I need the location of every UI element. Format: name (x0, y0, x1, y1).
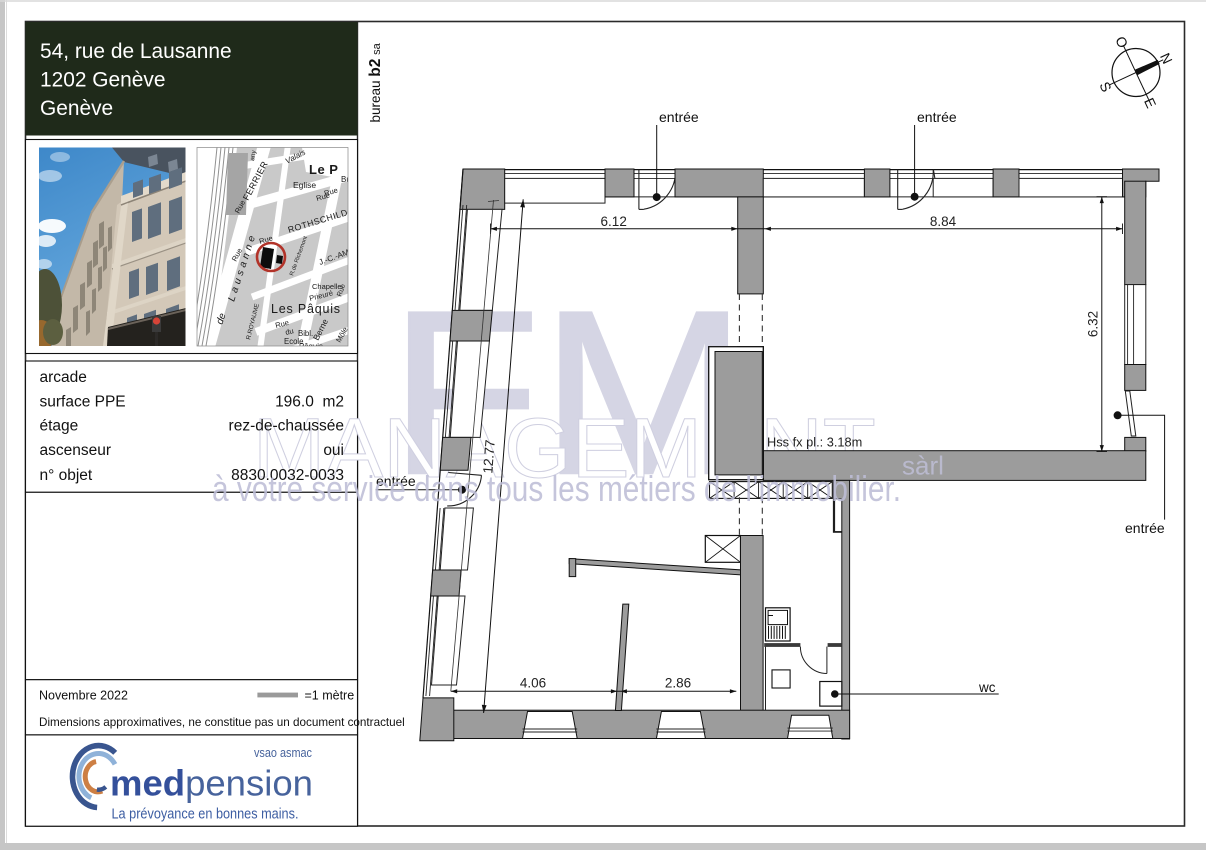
svg-text:6.12: 6.12 (601, 214, 627, 229)
svg-text:8.84: 8.84 (930, 214, 957, 229)
svg-text:oui: oui (323, 442, 344, 459)
svg-text:vsao asmac: vsao asmac (254, 746, 312, 760)
svg-text:=1 mètre: =1 mètre (305, 689, 355, 703)
svg-text:54, rue de Lausanne: 54, rue de Lausanne (40, 40, 232, 63)
svg-text:entrée: entrée (1125, 520, 1165, 536)
svg-text:n° objet: n° objet (40, 467, 93, 484)
svg-text:4.06: 4.06 (520, 676, 546, 691)
svg-text:Novembre 2022: Novembre 2022 (39, 689, 128, 703)
svg-text:étage: étage (40, 418, 79, 435)
svg-text:2.86: 2.86 (665, 676, 691, 691)
svg-text:surface PPE: surface PPE (40, 394, 126, 411)
svg-text:Genève: Genève (40, 97, 113, 120)
svg-text:Eglise: Eglise (293, 180, 316, 190)
svg-text:Hss fx pl.: 3.18m: Hss fx pl.: 3.18m (767, 435, 862, 450)
svg-text:wc: wc (978, 680, 996, 695)
svg-text:à votre service dans tous les: à votre service dans tous les métiers de… (212, 468, 901, 509)
svg-text:La prévoyance en bonnes mains.: La prévoyance en bonnes mains. (112, 806, 299, 823)
svg-text:196.0 m2: 196.0 m2 (275, 394, 344, 411)
svg-text:arcade: arcade (40, 369, 87, 386)
svg-text:1202 Genève: 1202 Genève (40, 69, 165, 92)
svg-text:rez-de-chaussée: rez-de-chaussée (229, 418, 344, 435)
svg-text:Dimensions approximatives, ne: Dimensions approximatives, ne constitue … (39, 716, 405, 729)
svg-text:sàrl: sàrl (902, 451, 944, 481)
svg-text:entrée: entrée (659, 109, 699, 125)
svg-text:medpension: medpension (110, 763, 313, 804)
svg-text:Le P: Le P (309, 162, 338, 177)
svg-text:Les Pâquis: Les Pâquis (271, 302, 341, 316)
svg-text:ascenseur: ascenseur (40, 442, 112, 459)
svg-text:6.32: 6.32 (1086, 311, 1101, 337)
svg-text:entrée: entrée (917, 109, 957, 125)
